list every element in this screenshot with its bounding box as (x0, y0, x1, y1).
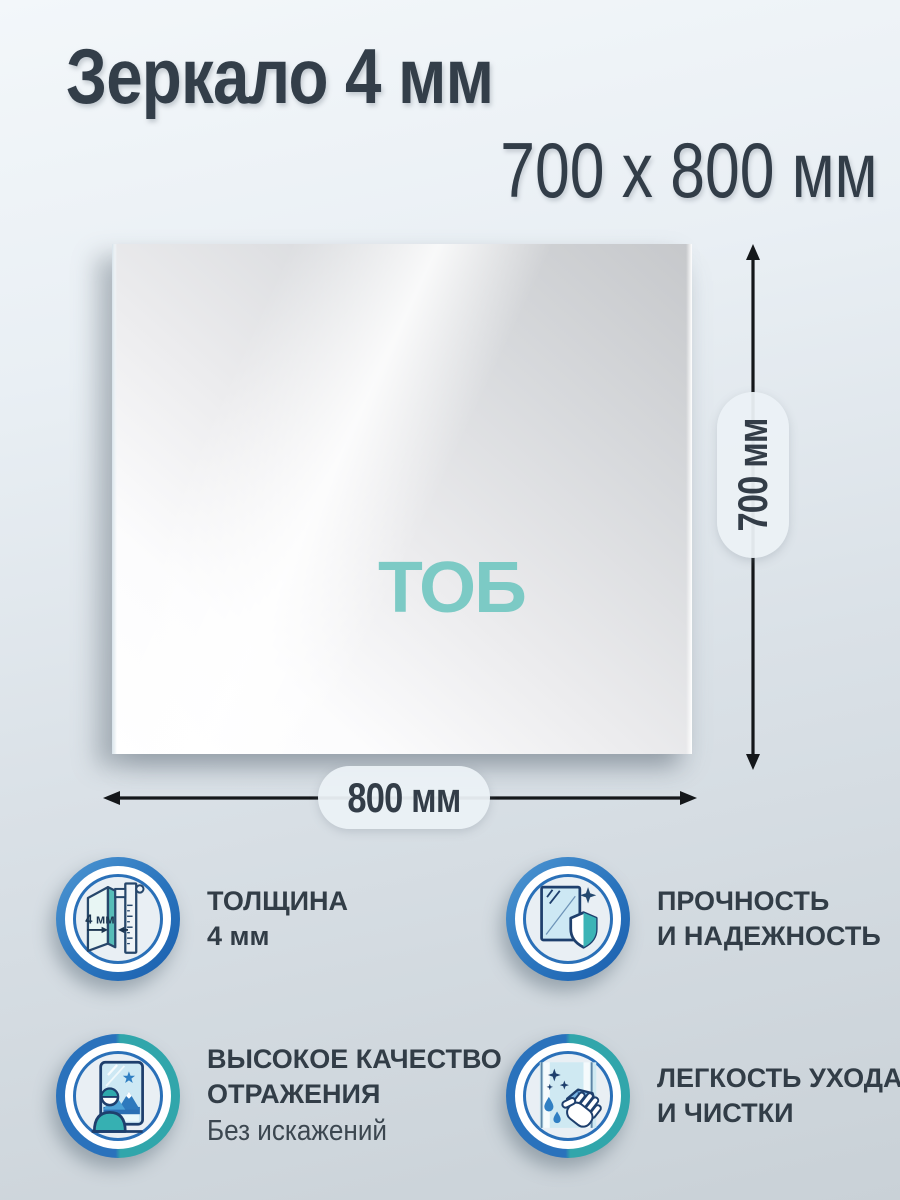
feature-text: ВЫСОКОЕ КАЧЕСТВО ОТРАЖЕНИЯ Без искажений (207, 1042, 502, 1150)
badge-inner (523, 1051, 613, 1141)
feature-title-line: И ЧИСТКИ (657, 1096, 900, 1131)
height-dimension-pill: 700 мм (717, 392, 789, 558)
feature-title-line: ВЫСОКОЕ КАЧЕСТВО (207, 1042, 502, 1077)
feature-text: ЛЕГКОСТЬ УХОДА И ЧИСТКИ (657, 1061, 900, 1131)
mirror-left-edge-highlight (112, 244, 117, 754)
feature-title-line: ЛЕГКОСТЬ УХОДА (657, 1061, 900, 1096)
caliper-measure-label: 4 мм (85, 912, 115, 927)
page-title: Зеркало 4 мм (66, 34, 493, 120)
width-dimension-label: 800 мм (347, 774, 460, 822)
size-subtitle: 700 х 800 мм (501, 128, 878, 214)
feature-easy-cleaning: ЛЕГКОСТЬ УХОДА И ЧИСТКИ (506, 1034, 900, 1158)
feature-title-line: И НАДЕЖНОСТЬ (657, 919, 881, 954)
badge-inner (523, 874, 613, 964)
feature-strength: ПРОЧНОСТЬ И НАДЕЖНОСТЬ (506, 857, 881, 981)
feature-badge (506, 1034, 630, 1158)
feature-text: ТОЛЩИНА 4 мм (207, 884, 348, 954)
brand-logo: ТОБ (378, 552, 525, 624)
hand-cloth-icon (527, 1055, 609, 1137)
feature-title-line: ОТРАЖЕНИЯ (207, 1077, 502, 1112)
feature-title-line: 4 мм (207, 919, 348, 954)
feature-badge: 4 мм (56, 857, 180, 981)
mirror-panel: ТОБ (112, 244, 692, 754)
product-card: Зеркало 4 мм 700 х 800 мм ТОБ 700 мм 800… (0, 0, 900, 1200)
feature-text: ПРОЧНОСТЬ И НАДЕЖНОСТЬ (657, 884, 881, 954)
feature-badge (506, 857, 630, 981)
mirror-right-edge-highlight (686, 244, 692, 754)
width-dimension-pill: 800 мм (318, 766, 490, 829)
feature-badge (56, 1034, 180, 1158)
feature-thickness: 4 мм ТОЛЩИНА 4 мм (56, 857, 348, 981)
feature-title-line: ПРОЧНОСТЬ (657, 884, 881, 919)
feature-title-line: ТОЛЩИНА (207, 884, 348, 919)
person-mirror-icon (77, 1055, 159, 1137)
badge-inner: 4 мм (73, 874, 163, 964)
height-dimension-label: 700 мм (729, 418, 777, 531)
feature-note: Без искажений (207, 1112, 472, 1150)
feature-reflection-quality: ВЫСОКОЕ КАЧЕСТВО ОТРАЖЕНИЯ Без искажений (56, 1034, 502, 1158)
caliper-icon: 4 мм (77, 878, 159, 960)
badge-inner (73, 1051, 163, 1141)
mirror-shield-icon (527, 878, 609, 960)
